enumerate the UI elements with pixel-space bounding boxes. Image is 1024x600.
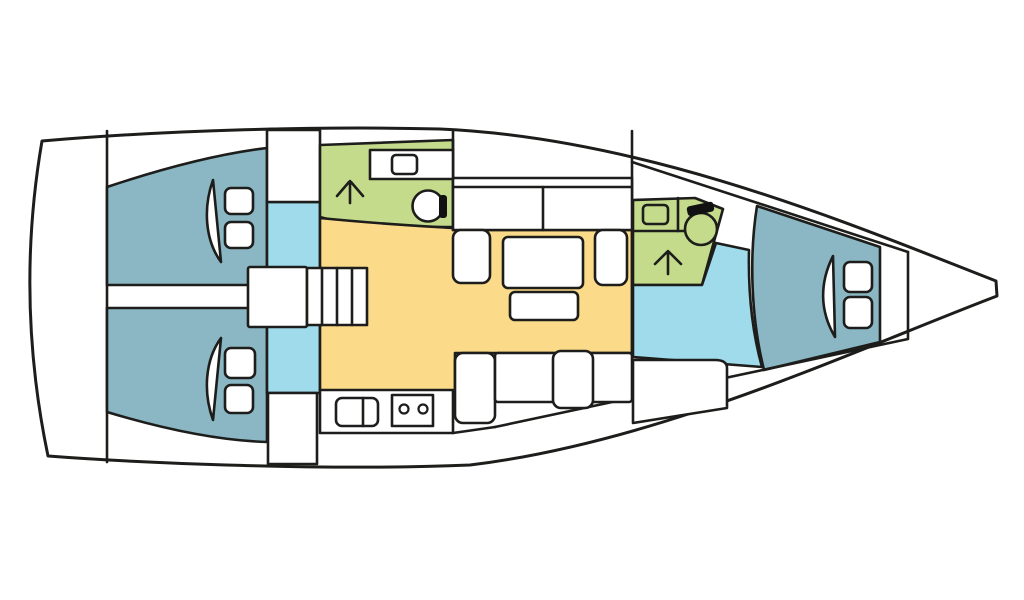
aft-head-toilet-tank xyxy=(439,195,447,218)
yacht-layout-diagram xyxy=(0,0,1024,600)
saloon-table xyxy=(503,237,583,288)
starboard-cabin-pillow-2 xyxy=(225,385,253,413)
port-cabin-pillow-1 xyxy=(225,188,253,214)
galley-burner-left xyxy=(400,405,409,414)
aft-head-toilet xyxy=(413,191,444,222)
companionway-landing xyxy=(248,267,307,327)
saloon-seat-right xyxy=(595,230,627,285)
forward-cabin-pillow-1 xyxy=(844,262,872,292)
yacht-layout-svg xyxy=(0,0,1024,600)
saloon-table-leaf xyxy=(510,292,578,320)
nav-seat xyxy=(633,360,727,423)
starboard-cabin-pillow-1 xyxy=(225,348,255,378)
forward-head-sink xyxy=(643,205,668,224)
wet-locker-top xyxy=(267,130,320,202)
forward-cabin-pillow-2 xyxy=(844,297,872,328)
forward-head-toilet xyxy=(685,213,717,245)
saloon-chair-bottom xyxy=(553,351,593,408)
wet-locker-bottom xyxy=(268,393,317,464)
saloon-seat-bottom xyxy=(455,353,495,423)
galley-sink xyxy=(336,398,378,426)
port-cabin-pillow-2 xyxy=(225,222,253,248)
galley-burner-right xyxy=(419,405,428,414)
aft-head-sink xyxy=(392,155,417,174)
saloon-seat-left xyxy=(453,230,490,283)
